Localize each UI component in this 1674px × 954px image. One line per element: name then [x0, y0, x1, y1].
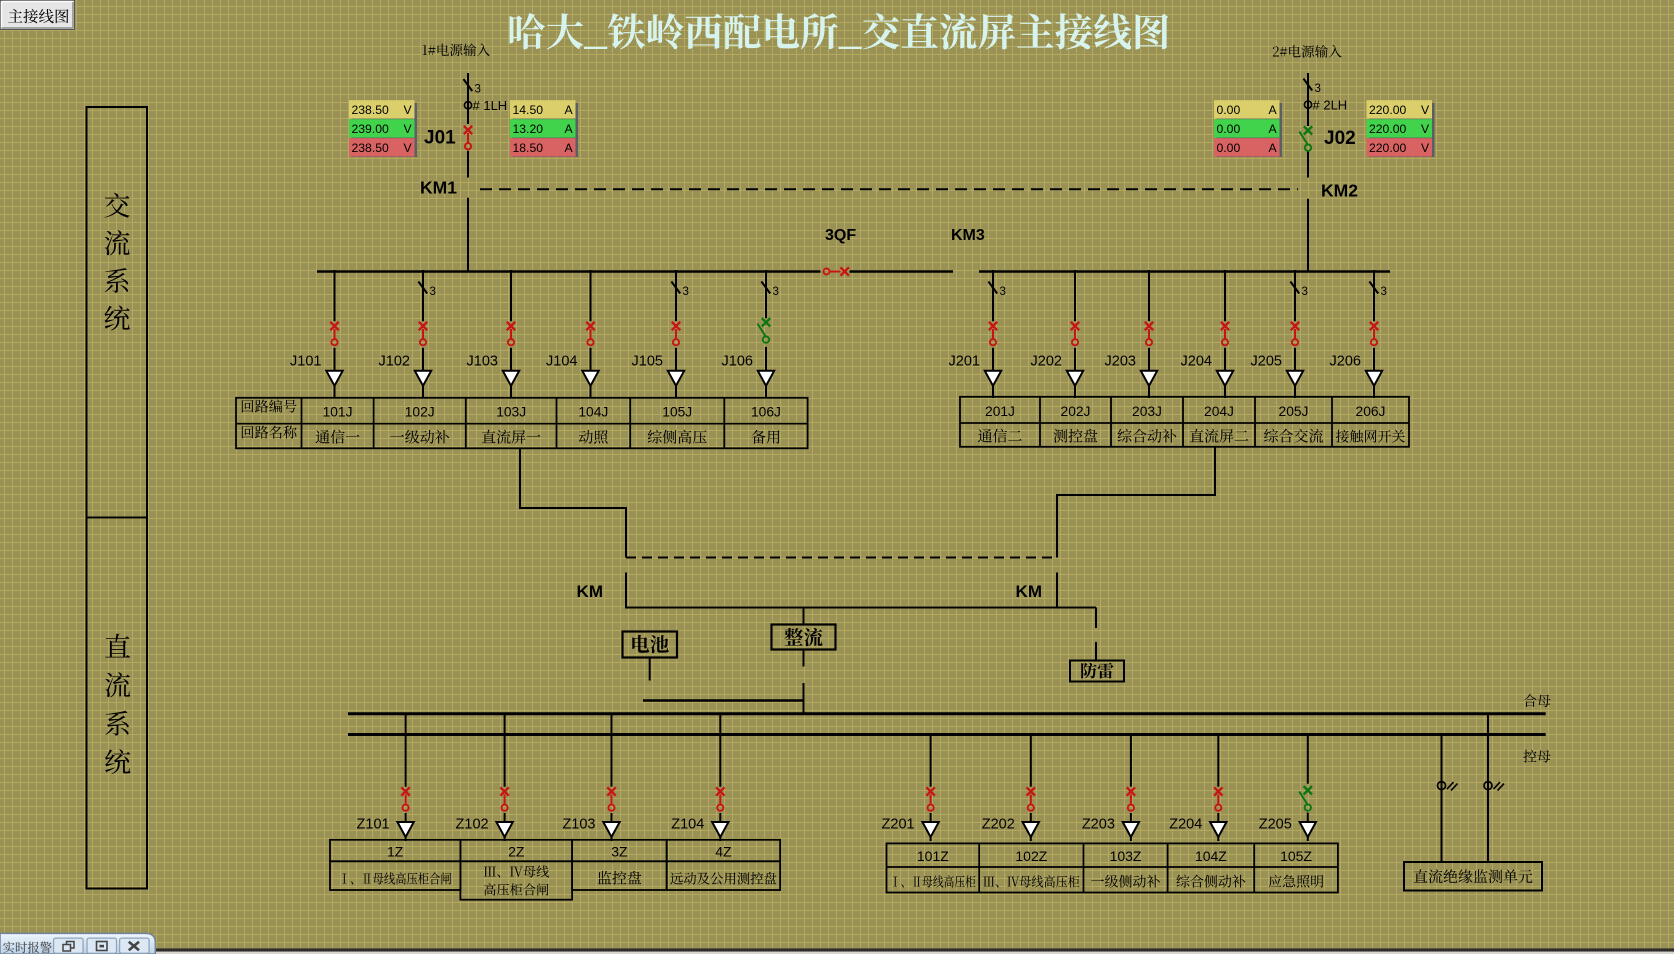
svg-text:104Z: 104Z	[1195, 848, 1227, 864]
svg-text:A: A	[565, 141, 574, 155]
svg-text:V: V	[1421, 141, 1430, 155]
svg-text:3: 3	[773, 286, 779, 298]
svg-text:# 2LH: # 2LH	[1313, 97, 1348, 112]
svg-text:V: V	[1421, 122, 1430, 136]
svg-text:KM3: KM3	[951, 227, 985, 244]
svg-text:J01: J01	[424, 128, 456, 149]
svg-text:102J: 102J	[405, 405, 435, 420]
svg-text:3: 3	[430, 286, 436, 298]
svg-text:204J: 204J	[1204, 404, 1234, 419]
svg-text:2Z: 2Z	[508, 844, 525, 860]
svg-text:Z201: Z201	[882, 817, 915, 833]
svg-text:A: A	[1269, 122, 1278, 136]
svg-text:J201: J201	[949, 354, 980, 370]
svg-text:A: A	[1269, 103, 1278, 117]
svg-text:J102: J102	[379, 354, 410, 370]
svg-text:Z103: Z103	[562, 817, 595, 833]
svg-text:J103: J103	[467, 354, 498, 370]
svg-text:3QF: 3QF	[825, 227, 856, 244]
svg-text:239.00: 239.00	[352, 122, 389, 136]
svg-text:104J: 104J	[578, 405, 608, 420]
svg-text:3: 3	[1381, 286, 1387, 298]
svg-text:13.20: 13.20	[513, 122, 544, 136]
svg-text:KM2: KM2	[1321, 181, 1358, 201]
svg-text:J205: J205	[1251, 354, 1282, 370]
svg-text:201J: 201J	[985, 404, 1015, 419]
svg-text:Z104: Z104	[671, 817, 704, 833]
svg-text:238.50: 238.50	[352, 141, 389, 155]
svg-text:14.50: 14.50	[513, 103, 544, 117]
svg-text:103J: 103J	[496, 405, 526, 420]
svg-text:3: 3	[1000, 286, 1006, 298]
svg-text:Z203: Z203	[1082, 817, 1115, 833]
svg-text:Z101: Z101	[357, 817, 390, 833]
svg-text:KM1: KM1	[420, 178, 457, 198]
svg-text:Z202: Z202	[982, 817, 1015, 833]
svg-text:J105: J105	[632, 354, 663, 370]
svg-text:V: V	[1421, 103, 1430, 117]
svg-text:238.50: 238.50	[352, 103, 389, 117]
svg-text:A: A	[1269, 141, 1278, 155]
svg-text:220.00: 220.00	[1369, 103, 1406, 117]
svg-text:V: V	[404, 141, 413, 155]
svg-text:102Z: 102Z	[1015, 848, 1047, 864]
svg-text:0.00: 0.00	[1217, 122, 1241, 136]
svg-text:Z102: Z102	[456, 817, 489, 833]
svg-text:V: V	[404, 103, 413, 117]
svg-text:103Z: 103Z	[1110, 848, 1142, 864]
svg-text:3: 3	[1315, 83, 1321, 95]
svg-text:106J: 106J	[751, 405, 781, 420]
svg-text:J101: J101	[290, 354, 321, 370]
svg-text:18.50: 18.50	[513, 141, 544, 155]
svg-text:A: A	[565, 103, 574, 117]
svg-text:105J: 105J	[662, 405, 692, 420]
svg-text:1Z: 1Z	[387, 844, 404, 860]
svg-text:202J: 202J	[1061, 404, 1091, 419]
svg-text:KM: KM	[1016, 582, 1042, 601]
svg-text:205J: 205J	[1279, 404, 1309, 419]
svg-text:0.00: 0.00	[1217, 103, 1241, 117]
svg-text:J206: J206	[1330, 354, 1361, 370]
svg-text:J202: J202	[1031, 354, 1062, 370]
svg-text:4Z: 4Z	[715, 844, 732, 860]
svg-text:Z205: Z205	[1259, 817, 1292, 833]
svg-text:# 1LH: # 1LH	[473, 98, 508, 113]
svg-text:220.00: 220.00	[1369, 141, 1406, 155]
svg-text:0.00: 0.00	[1217, 141, 1241, 155]
svg-text:A: A	[565, 122, 574, 136]
svg-text:J104: J104	[546, 354, 577, 370]
svg-text:105Z: 105Z	[1280, 848, 1312, 864]
svg-text:J106: J106	[722, 354, 753, 370]
svg-text:206J: 206J	[1356, 404, 1386, 419]
svg-text:220.00: 220.00	[1369, 122, 1406, 136]
svg-text:101J: 101J	[323, 405, 353, 420]
svg-text:Z204: Z204	[1169, 817, 1202, 833]
svg-text:203J: 203J	[1132, 404, 1162, 419]
svg-text:KM: KM	[577, 582, 603, 601]
svg-text:3: 3	[1302, 286, 1308, 298]
svg-text:3: 3	[475, 84, 481, 96]
svg-text:3: 3	[683, 286, 689, 298]
svg-text:3Z: 3Z	[611, 844, 628, 860]
svg-text:J203: J203	[1105, 354, 1136, 370]
svg-text:J204: J204	[1181, 354, 1212, 370]
svg-text:V: V	[404, 122, 413, 136]
svg-text:J02: J02	[1324, 128, 1356, 149]
svg-text:101Z: 101Z	[917, 848, 949, 864]
